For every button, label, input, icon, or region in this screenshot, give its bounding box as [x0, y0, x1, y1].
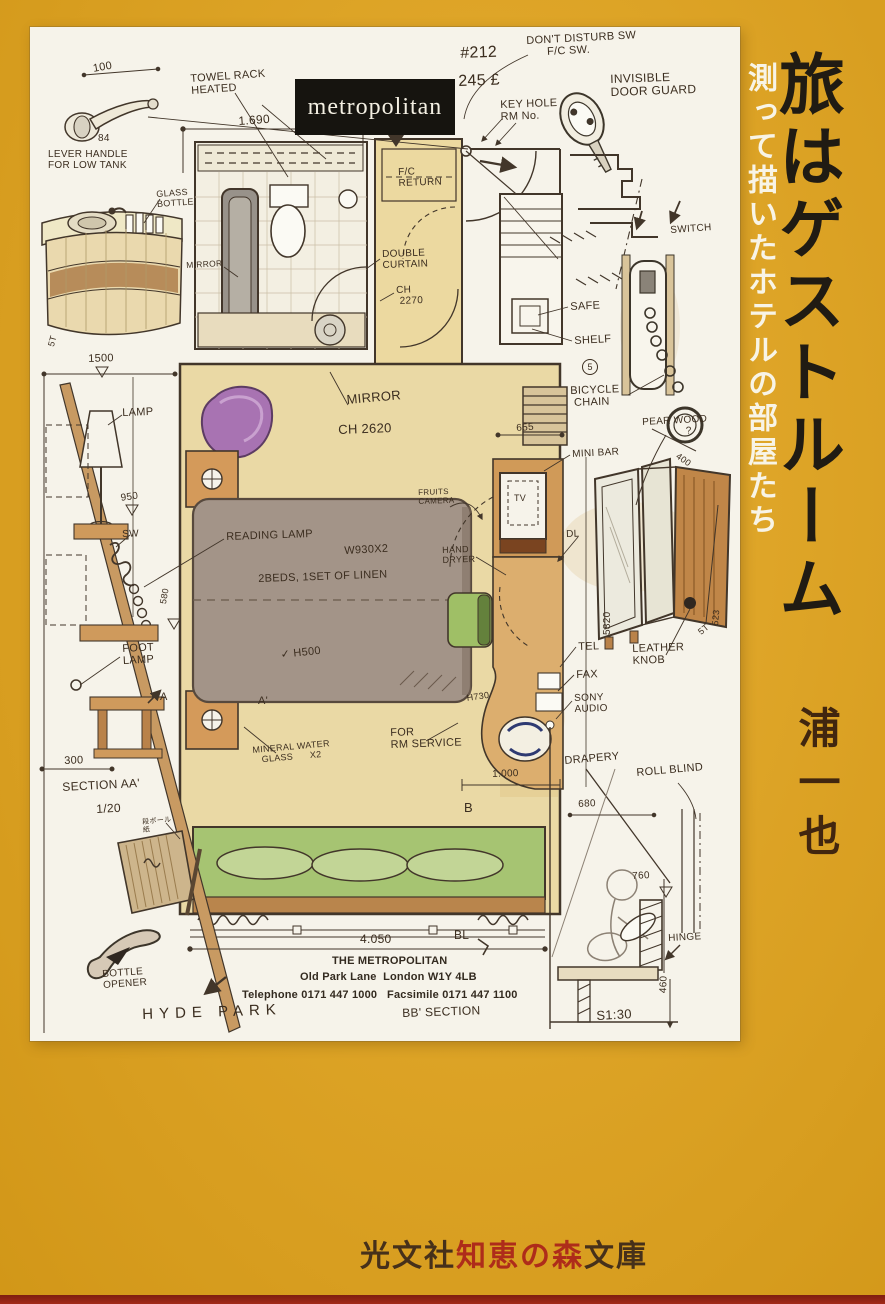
label-hinge: HINGE	[668, 931, 702, 944]
dim-680: 680	[578, 798, 596, 810]
dim-1500: 1500	[88, 352, 114, 365]
dim-w930: W930X2	[344, 543, 389, 558]
dim-1690: 1.690	[238, 113, 270, 129]
label-towel-rack: TOWEL RACK HEATED	[190, 68, 267, 98]
dim-460: 460	[658, 975, 670, 993]
dim-1000: 1.000	[492, 768, 519, 780]
label-bb-section: BB' SECTION	[402, 1004, 481, 1020]
label-roll-blind: ROLL BLIND	[636, 761, 704, 779]
label-for-rm-service: FOR RM SERVICE	[390, 725, 462, 752]
publisher-part2: 知恵の森	[456, 1240, 584, 1273]
label-bottle-opener: BOTTLE OPENER	[102, 966, 148, 991]
label-fax: FAX	[576, 668, 598, 681]
label-mirror-bath: MIRROR	[186, 259, 223, 270]
shelf-count: 5	[582, 359, 598, 375]
label-key-hole: KEY HOLE RM No.	[500, 97, 558, 124]
label-dl: DL	[566, 529, 580, 541]
dim-950: 950	[120, 491, 139, 505]
label-mineral-water: MINERAL WATER GLASS X2	[252, 738, 331, 765]
sketch-panel: 10084LEVER HANDLE FOR LOW TANKGLASS BOTT…	[30, 27, 740, 1041]
publisher-part3: 文庫	[584, 1240, 648, 1273]
label-shelf: SHELF	[574, 333, 612, 347]
bottom-edge-strip	[0, 1295, 885, 1304]
metropolitan-logo-text: metropolitan	[308, 94, 443, 121]
note-cardboard: 段ボール 紙	[142, 816, 172, 834]
dim-400: 400	[674, 451, 693, 468]
hotel-phone: Telephone 0171 447 1000 Facsimile 0171 4…	[242, 989, 518, 1001]
hotel-name: THE METROPOLITAN	[332, 955, 447, 967]
label-hand-dryer: HAND DRYER	[442, 544, 476, 565]
mark-bl: BL	[454, 929, 469, 942]
dim-580: 580	[158, 587, 171, 604]
label-fc-return: F/C RETURN	[398, 165, 442, 189]
label-double-curtain: DOUBLE CURTAIN	[382, 247, 428, 271]
label-beds: 2BEDS, 1SET OF LINEN	[258, 568, 388, 585]
dim-523: 523	[710, 609, 721, 626]
label-switch: SWITCH	[670, 222, 712, 236]
publisher-part1: 光文社	[360, 1240, 456, 1273]
label-camera: FRUITS CAMERA	[418, 488, 455, 507]
label-foot-lamp: FOOT LAMP	[122, 641, 155, 667]
label-mirror-room: MIRROR	[346, 388, 402, 407]
label-reading-lamp: READING LAMP	[226, 528, 313, 543]
book-subtitle: 測って描いたホテルの部屋たち	[744, 62, 774, 538]
book-title: 旅はゲストルーム	[774, 50, 840, 626]
publisher-imprint: 光文社知恵の森文庫	[360, 1231, 648, 1275]
label-drapery: DRAPERY	[564, 750, 620, 767]
label-lever-handle: LEVER HANDLE FOR LOW TANK	[48, 149, 128, 171]
book-cover: 10084LEVER HANDLE FOR LOW TANKGLASS BOTT…	[0, 0, 885, 1304]
author-name: 浦一也	[795, 706, 837, 868]
label-leather-knob: LEATHER KNOB	[632, 641, 685, 667]
room-number: #212	[460, 44, 497, 63]
dim-655: 655	[516, 422, 534, 434]
label-section-aa: SECTION AA'	[62, 777, 140, 794]
label-dont-disturb: DON'T DISTURB SW F/C SW.	[526, 29, 637, 59]
note-5t-wardrobe: 5T	[696, 622, 711, 637]
label-safe: SAFE	[570, 299, 601, 313]
label-sony-audio: SONY AUDIO	[574, 692, 608, 716]
label-scale-aa: 1/20	[96, 802, 121, 817]
dim-100: 100	[92, 60, 113, 75]
dim-760: 760	[632, 870, 650, 882]
note-5t-left: 5T	[46, 334, 59, 347]
dim-ch2270: CH 2270	[396, 284, 423, 307]
label-sw: SW	[122, 528, 139, 540]
mark-a-prime: A'	[258, 695, 268, 707]
label-bicycle-chain: BICYCLE CHAIN	[570, 383, 620, 409]
dim-5820: 5820	[602, 612, 613, 635]
label-hyde-park: HYDE PARK	[142, 1002, 282, 1024]
label-tel: TEL	[578, 640, 599, 653]
dim-h730: H730	[466, 690, 490, 703]
label-tv: TV	[514, 493, 526, 503]
room-rate: 245 £	[458, 72, 500, 91]
label-invisible-door-guard: INVISIBLE DOOR GUARD	[610, 70, 697, 100]
sketch-label-layer: 10084LEVER HANDLE FOR LOW TANKGLASS BOTT…	[30, 27, 740, 1041]
label-mini-bar: MINI BAR	[572, 447, 619, 461]
hotel-address: Old Park Lane London W1Y 4LB	[300, 971, 477, 983]
dia-84: 84	[98, 133, 110, 144]
label-scale-bb: S1:30	[596, 1007, 632, 1023]
mark-a: A	[160, 691, 168, 703]
label-glass-bottle: GLASS BOTTLE	[156, 186, 194, 209]
dim-ch2620: CH 2620	[338, 421, 392, 437]
label-pear-wood: PEAR WOOD ?	[642, 414, 708, 440]
mark-b: B	[464, 801, 473, 816]
label-lamp: LAMP	[122, 406, 154, 419]
label-h500: ✓ H500	[280, 645, 321, 661]
dim-4050: 4.050	[360, 933, 392, 946]
dim-300: 300	[64, 754, 84, 767]
metropolitan-logo: metropolitan	[295, 79, 455, 135]
